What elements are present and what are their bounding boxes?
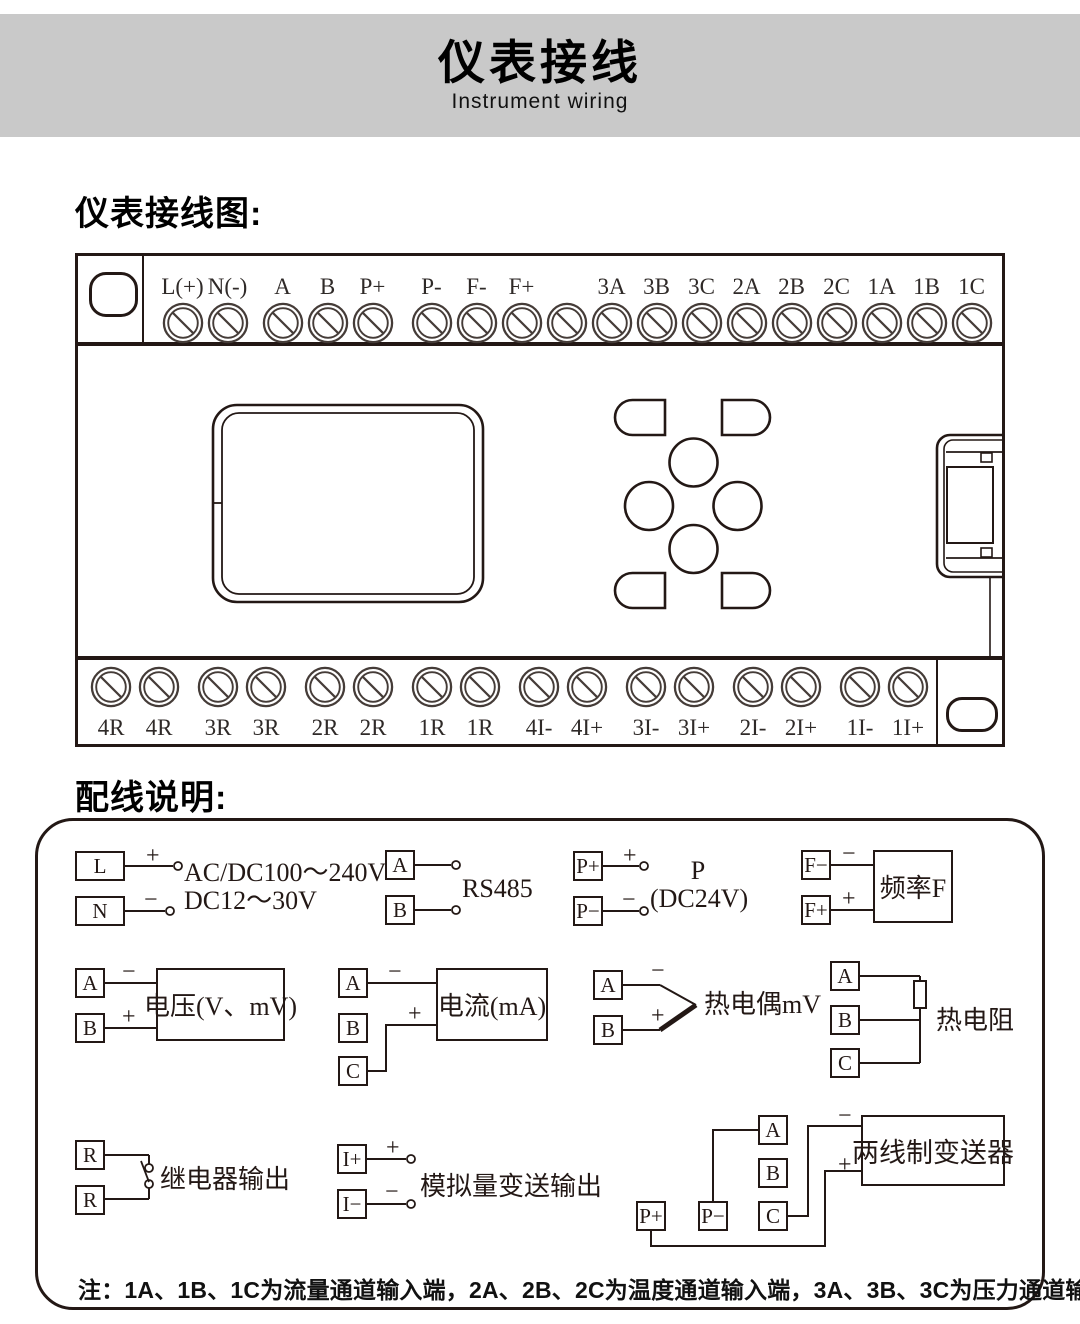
analog-out-label: 模拟量变送输出 [420,1173,602,1201]
terminal-box-C: C [758,1201,788,1231]
bottom-terminals: 4R 4R [87,660,932,741]
polarity-plus: + [651,1003,665,1030]
terminal-label: 3R [253,715,280,741]
screw-terminal-icon [197,666,239,708]
polarity-minus: − [838,1103,852,1130]
polarity-plus: + [408,1001,422,1028]
screw-terminal-icon [352,666,394,708]
terminal: N(-) [205,256,250,344]
screw-terminal-icon [307,302,349,344]
terminal: 3C [679,256,724,344]
polarity-plus: + [122,1004,136,1031]
terminal [544,256,589,344]
terminal-box-A: A [830,961,860,991]
terminal-label: 1R [467,715,494,741]
terminal: 1R [408,660,456,741]
polarity-plus: + [838,1152,852,1179]
terminal: F- [454,256,499,344]
side-connector-notch-top [981,453,992,462]
terminal-box-B: B [593,1015,623,1045]
terminal-label: 2R [360,715,387,741]
polarity-minus: − [388,959,402,986]
current-device-box: 电流(mA) [436,968,548,1041]
terminal-box-I-plus: I+ [337,1144,367,1174]
screw-terminal-icon [411,302,453,344]
wiring-diagram-heading: 仪表接线图: [75,186,262,235]
terminal: 2A [724,256,769,344]
terminal: 3R [242,660,290,741]
wiring-notes-panel: L N + − AC/DC100～240V DC12～30V A B RS485… [35,818,1045,1310]
polarity-minus: − [842,841,856,868]
terminal: 2C [814,256,859,344]
mounting-slot-icon [946,697,998,732]
screw-terminal-icon [726,302,768,344]
screw-terminal-icon [245,666,287,708]
terminal: 2R [301,660,349,741]
power-spec-line2: DC12～30V [184,887,386,915]
terminal-label: 1B [913,272,940,302]
terminal: 3R [194,660,242,741]
terminal-label: 1A [867,272,895,302]
terminal: 1A [859,256,904,344]
terminal-box-C: C [830,1048,860,1078]
terminal: 4I- [515,660,563,741]
rtd-label: 热电阻 [936,1007,1014,1035]
instrument-rear-panel: L(+) N(-) [75,253,1005,747]
polarity-minus: − [622,887,636,914]
terminal-box-P-minus: P− [698,1201,728,1231]
rs485-label: RS485 [462,875,533,903]
terminal-label: 4I- [526,715,553,741]
frequency-device-box: 频率F [873,850,953,923]
display-inner-outline [222,413,474,594]
screw-terminal-icon [459,666,501,708]
terminal-box-F-minus: F− [801,850,831,880]
side-connector-slot [947,467,993,543]
terminal: 1C [949,256,994,344]
polarity-plus: + [623,843,637,870]
key-bottom-right-icon [722,573,770,608]
terminal-label: 1C [958,272,985,302]
terminal-label: 1I- [847,715,874,741]
polarity-plus: + [386,1135,400,1162]
screw-terminal-icon [816,302,858,344]
voltage-device-box: 电压(V、mV) [156,968,285,1041]
side-connector-notch-bottom [981,548,992,557]
screw-terminal-icon [566,666,608,708]
p24-line1: P [650,857,746,885]
terminal-label: 3I+ [678,715,710,741]
screw-terminal-icon [162,302,204,344]
screw-terminal-icon [411,666,453,708]
key-down-icon [670,525,718,573]
terminal-label: F- [466,272,486,302]
screw-terminal-icon [546,302,588,344]
terminal-label: 2A [732,272,760,302]
terminal-box-B: B [385,895,415,925]
terminal: 1B [904,256,949,344]
terminal-box-R: R [75,1185,105,1215]
terminal-label: 4I+ [571,715,603,741]
terminal: 4R [135,660,183,741]
screw-terminal-icon [352,302,394,344]
screw-terminal-icon [207,302,249,344]
polarity-minus: − [122,959,136,986]
terminal-label: 3B [643,272,670,302]
terminal-label: 4R [98,715,125,741]
p24-label: P (DC24V) [650,857,746,913]
terminal: 2I- [729,660,777,741]
terminal: A [260,256,305,344]
screw-terminal-icon [456,302,498,344]
terminal-box-A: A [338,968,368,998]
screw-terminal-icon [625,666,667,708]
bottom-terminal-strip: 4R 4R [78,656,1002,744]
power-spec-line1: AC/DC100～240V [184,859,386,887]
terminal-label: A [274,272,291,302]
terminal-label: L(+) [161,272,203,302]
page-title: 仪表接线 [438,37,642,89]
key-left-icon [625,482,673,530]
terminal-label: 1R [419,715,446,741]
terminal-label: 3R [205,715,232,741]
terminal-box-A: A [75,968,105,998]
terminal-label: 1I+ [892,715,924,741]
top-terminal-strip: L(+) N(-) [78,256,1002,346]
terminal-label: 3I- [633,715,660,741]
header-band: 仪表接线 Instrument wiring [0,14,1080,137]
terminal-box-B: B [758,1158,788,1188]
two-wire-device-box: 两线制变送器 [861,1115,1005,1186]
polarity-minus: − [651,958,665,985]
screw-terminal-icon [636,302,678,344]
polarity-minus: − [144,887,158,914]
terminal-box-F-plus: F+ [801,895,831,925]
terminal-box-P-plus: P+ [573,851,603,881]
thermocouple-label: 热电偶mV [704,991,821,1019]
terminal-box-A: A [385,850,415,880]
channel-note: 注：1A、1B、1C为流量通道输入端，2A、2B、2C为温度通道输入端，3A、3… [78,1271,1028,1305]
top-left-compartment [78,256,144,342]
mounting-slot-icon [89,272,138,317]
terminal: 2R [349,660,397,741]
terminal: B [305,256,350,344]
terminal-box-B: B [75,1013,105,1043]
relay-label: 继电器输出 [160,1166,290,1194]
terminal-label: N(-) [208,272,248,302]
screw-terminal-icon [501,302,543,344]
terminal-box-B: B [338,1013,368,1043]
terminal-box-L: L [75,851,125,881]
terminal-box-P-plus: P+ [636,1201,666,1231]
power-spec: AC/DC100～240V DC12～30V [184,859,386,915]
key-right-icon [714,482,762,530]
wiring-notes-heading: 配线说明: [75,770,227,819]
screw-terminal-icon [906,302,948,344]
screw-terminal-icon [591,302,633,344]
terminal-box-B: B [830,1005,860,1035]
terminal: 3I- [622,660,670,741]
terminal-label: 2R [312,715,339,741]
key-bottom-left-icon [615,573,665,608]
terminal: P+ [350,256,395,344]
terminal-box-I-minus: I− [337,1189,367,1219]
polarity-minus: − [385,1179,399,1206]
terminal-label: 2I+ [785,715,817,741]
p24-line2: (DC24V) [650,885,746,913]
display-outline [213,405,483,602]
bottom-right-compartment [936,660,1002,744]
screw-terminal-icon [771,302,813,344]
terminal: 3A [589,256,634,344]
screw-terminal-icon [304,666,346,708]
terminal-label: 3C [688,272,715,302]
screw-terminal-icon [861,302,903,344]
terminal-label: P+ [360,272,386,302]
terminal: 3B [634,256,679,344]
terminal-label: 3A [597,272,625,302]
screw-terminal-icon [951,302,993,344]
terminal: 1R [456,660,504,741]
terminal-label: 4R [146,715,173,741]
terminal-label: F+ [509,272,535,302]
key-top-left-icon [615,400,665,435]
terminal: 2I+ [777,660,825,741]
terminal: 4I+ [563,660,611,741]
top-terminals: L(+) N(-) [160,256,994,344]
terminal: 1I- [836,660,884,741]
polarity-plus: + [842,886,856,913]
key-up-icon [670,439,718,487]
screw-terminal-icon [673,666,715,708]
terminal-label: P- [421,272,441,302]
screw-terminal-icon [839,666,881,708]
terminal: F+ [499,256,544,344]
screw-terminal-icon [262,302,304,344]
terminal-label: 2B [778,272,805,302]
screw-terminal-icon [138,666,180,708]
screw-terminal-icon [780,666,822,708]
key-top-right-icon [722,400,770,435]
terminal: 2B [769,256,814,344]
terminal: 3I+ [670,660,718,741]
polarity-plus: + [146,843,160,870]
terminal: P- [409,256,454,344]
terminal-label: 2C [823,272,850,302]
terminal-box-C: C [338,1056,368,1086]
terminal-box-N: N [75,896,125,926]
terminal-box-A: A [593,970,623,1000]
screw-terminal-icon [518,666,560,708]
terminal-box-R: R [75,1140,105,1170]
page-subtitle: Instrument wiring [452,90,629,114]
terminal: 4R [87,660,135,741]
terminal-box-P-minus: P− [573,896,603,926]
screw-terminal-icon [732,666,774,708]
screw-terminal-icon [887,666,929,708]
terminal-label: 2I- [740,715,767,741]
terminal: L(+) [160,256,205,344]
terminal-box-A: A [758,1115,788,1145]
screw-terminal-icon [90,666,132,708]
terminal-label: B [320,272,335,302]
screw-terminal-icon [681,302,723,344]
terminal: 1I+ [884,660,932,741]
page: 仪表接线 Instrument wiring 仪表接线图: [0,0,1080,1324]
